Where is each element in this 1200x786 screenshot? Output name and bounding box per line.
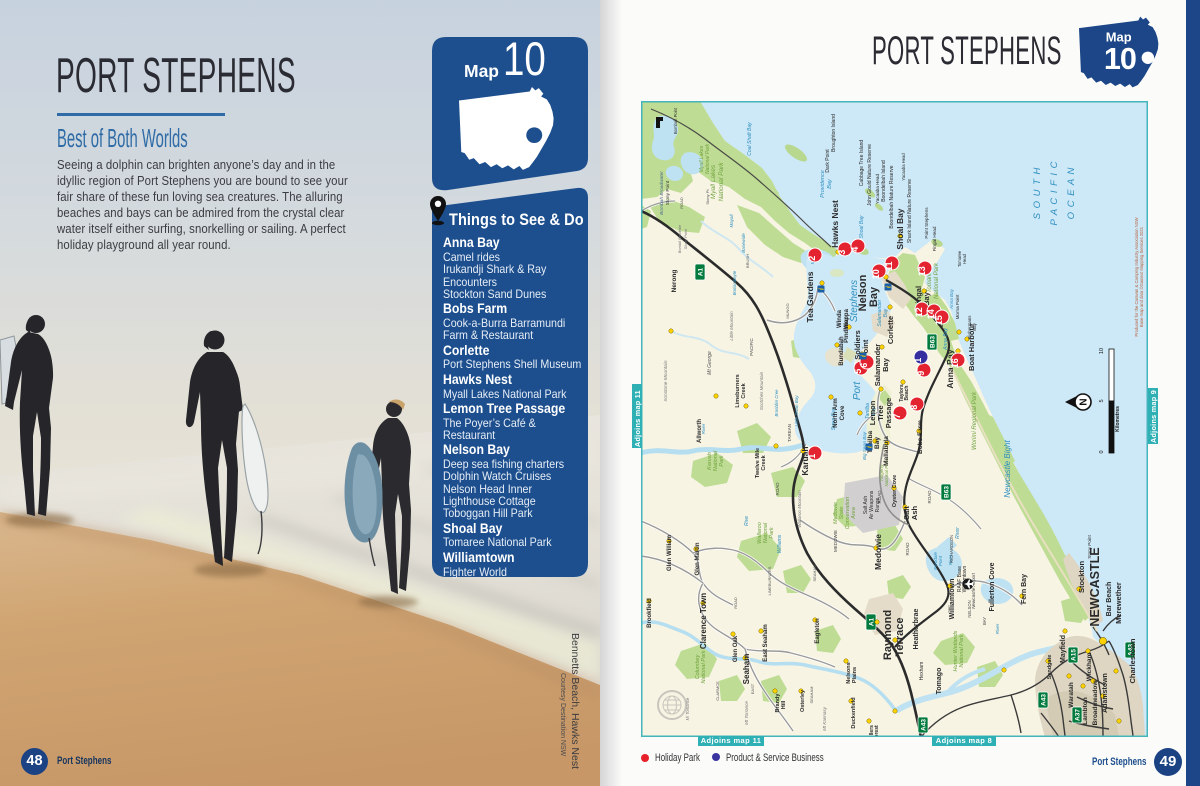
svg-text:Oyster Cove: Oyster Cove [892,475,898,507]
svg-text:Beach: Beach [904,385,910,400]
svg-text:i: i [818,288,826,290]
svg-text:B63: B63 [943,486,950,498]
svg-text:Seaham: Seaham [742,654,751,685]
svg-text:10: 10 [1104,42,1136,76]
svg-text:A15: A15 [1070,649,1077,661]
svg-text:Mallabula: Mallabula [883,436,890,466]
svg-text:Boondelbah Island: Boondelbah Island [881,160,887,202]
svg-text:Winda: Winda [837,309,843,328]
svg-text:Bay: Bay [881,357,890,372]
svg-text:4: 4 [850,247,860,252]
svg-text:Lambton: Lambton [1082,697,1089,724]
svg-text:i: i [866,446,874,448]
svg-text:A37: A37 [1074,709,1081,721]
svg-text:Basewide: Basewide [741,233,746,253]
svg-text:BRUSH: BRUSH [745,254,750,268]
svg-text:ROAD: ROAD [679,197,684,209]
svg-text:Head: Head [962,253,967,264]
svg-text:Hawks Nest: Hawks Nest [830,200,840,248]
svg-text:EAST: EAST [750,683,755,694]
svg-text:Shark Island Nature Reserve: Shark Island Nature Reserve [907,179,913,243]
svg-text:Boat Harbour: Boat Harbour [967,323,976,371]
svg-text:2: 2 [807,256,817,261]
svg-text:Wickham: Wickham [1086,653,1093,682]
svg-text:Tomago: Tomago [936,668,943,695]
svg-text:Merewether: Merewether [1114,582,1123,624]
svg-text:MEDOWIE: MEDOWIE [833,530,838,552]
svg-text:Tea Gardens: Tea Gardens [805,271,815,322]
svg-text:Bobs Farm: Bobs Farm [917,420,924,454]
svg-text:Passage: Passage [884,398,893,428]
svg-text:A43: A43 [920,719,927,731]
svg-text:Little Mountain: Little Mountain [729,311,734,341]
svg-text:Williamtown: Williamtown [949,579,956,620]
svg-text:10: 10 [1099,348,1105,354]
svg-text:9: 9 [916,371,926,376]
svg-text:Adamstown: Adamstown [1102,673,1109,713]
svg-text:Williams: Williams [777,534,783,553]
svg-text:Duckenfield: Duckenfield [851,697,857,728]
svg-text:5: 5 [1099,399,1105,402]
svg-text:River: River [995,623,1000,634]
svg-text:Bombll Brodrale: Bombll Brodrale [677,224,682,253]
svg-text:East Seaham: East Seaham [763,624,769,661]
svg-text:Brookfield: Brookfield [647,598,653,628]
svg-text:Sandgate: Sandgate [1047,655,1053,680]
svg-text:Plains: Plains [852,667,858,683]
svg-text:Rive: Rive [744,516,750,526]
svg-text:Kilometres: Kilometres [1115,406,1121,432]
svg-text:Stony Point: Stony Point [683,228,688,249]
svg-text:Boolambayte: Boolambayte [732,270,737,295]
svg-text:Fern Bay: Fern Bay [1021,574,1028,604]
svg-text:Corlette: Corlette [886,316,895,344]
svg-text:PACIFIC: PACIFIC [749,338,754,356]
svg-text:Charlestown: Charlestown [1128,638,1137,683]
svg-text:National Park: National Park [934,262,940,299]
svg-text:B63: B63 [929,336,936,348]
svg-text:Point: Point [938,555,943,566]
svg-text:Creek: Creek [741,382,747,398]
svg-text:Bay: Bay [827,178,833,189]
svg-text:Branbbin Cree: Branbbin Cree [774,389,779,417]
svg-text:Stony Point: Stony Point [665,180,671,205]
svg-text:CLARMCE: CLARMCE [715,681,720,701]
svg-text:Creek: Creek [761,454,767,470]
svg-text:Anna Bay: Anna Bay [949,288,954,310]
svg-text:Myall Lakes: Myall Lakes [710,164,717,199]
svg-text:Glen Oak: Glen Oak [733,635,739,662]
svg-text:Cove: Cove [840,405,846,420]
svg-text:Park: Park [769,527,775,539]
svg-text:Bombah Broadwater: Bombah Broadwater [659,171,665,215]
svg-text:ROAD: ROAD [927,490,932,504]
svg-text:Raymond: Raymond [882,610,894,660]
svg-text:Shoal Bay: Shoal Bay [859,215,865,238]
svg-text:Medowie: Medowie [873,534,883,570]
svg-text:Mayall: Mayall [729,214,734,228]
svg-text:Fullerton Cove: Fullerton Cove [989,562,996,611]
svg-text:TAREAN: TAREAN [787,424,792,442]
svg-text:16: 16 [950,358,960,368]
svg-text:Glen Martin: Glen Martin [695,542,701,575]
svg-text:Stony Pt: Stony Pt [705,189,710,205]
svg-text:ROAD: ROAD [775,482,780,496]
svg-text:John Gould Nature Reserve: John Gould Nature Reserve [867,144,873,206]
svg-text:Base map and data ©Gautext Ma: Base map and data ©Gautext Mapping Servi… [1139,226,1144,327]
svg-text:N: N [1079,398,1090,405]
svg-text:Stockton: Stockton [1077,561,1086,594]
svg-text:Hexham: Hexham [919,662,925,681]
svg-text:ROAD: ROAD [877,490,882,504]
svg-text:7: 7 [892,414,902,419]
svg-text:Morna Point: Morna Point [955,294,960,319]
svg-text:A1: A1 [868,617,875,626]
svg-text:Osterley: Osterley [800,689,806,712]
svg-text:Point Stephens: Point Stephens [924,207,929,239]
svg-text:Fingal Head: Fingal Head [932,226,937,251]
svg-text:MUNGO: MUNGO [785,303,790,318]
svg-text:Broughton Island: Broughton Island [831,114,837,152]
svg-text:Mayfield: Mayfield [1060,635,1067,663]
svg-text:Mt Torrance: Mt Torrance [744,701,749,725]
svg-text:RICHARDSON: RICHARDSON [949,535,954,563]
svg-text:11: 11 [884,261,894,271]
svg-text:i: i [860,355,868,357]
svg-text:NELSON: NELSON [967,600,972,617]
svg-text:National Park: National Park [718,162,725,202]
svg-text:Mt George: Mt George [707,351,713,375]
svg-text:Wallaroo Mountain: Wallaroo Mountain [797,490,802,528]
svg-text:Scotches Mountain: Scotches Mountain [759,371,764,410]
svg-text:Bundabah: Bundabah [839,336,845,366]
svg-text:0: 0 [1099,450,1105,453]
svg-text:Newcastle Bight: Newcastle Bight [1003,440,1012,498]
svg-text:Allworth: Allworth [697,419,703,443]
svg-text:SEAHAM: SEAHAM [812,565,817,582]
svg-text:S O U T H: S O U T H [1032,167,1043,220]
svg-text:Bay: Bay [874,437,881,449]
svg-text:Glen William: Glen William [667,535,673,571]
svg-text:Little Swan Bay: Little Swan Bay [794,395,799,427]
svg-text:O C E A N: O C E A N [1066,167,1077,220]
svg-text:Area: Area [851,507,857,520]
svg-text:Bar Beach: Bar Beach [1106,582,1113,617]
svg-text:Ash: Ash [910,505,919,520]
svg-text:River: River [955,527,961,539]
svg-text:Ironstone Mountain: Ironstone Mountain [663,360,669,401]
svg-text:National Park: National Park [959,634,965,667]
svg-text:LIMEBURNERS: LIMEBURNERS [767,566,772,595]
svg-text:12: 12 [914,307,924,317]
svg-text:National Park: National Park [701,650,707,683]
svg-text:A43: A43 [1040,694,1047,706]
svg-text:Bombah Point: Bombah Point [673,107,678,134]
svg-text:NEWCASTLE: NEWCASTLE [1088,547,1102,626]
svg-text:Park: Park [719,455,725,467]
svg-text:ROAD: ROAD [733,597,738,609]
svg-text:Heatherbrae: Heatherbrae [913,608,920,649]
svg-text:Coal Shaft Bay: Coal Shaft Bay [747,122,753,156]
svg-text:15: 15 [934,315,944,325]
svg-text:13: 13 [917,266,927,276]
svg-text:8: 8 [909,405,919,410]
svg-text:5: 5 [853,369,863,374]
svg-text:Mt Kannasy: Mt Kannasy [822,706,827,731]
svg-text:6: 6 [859,363,869,368]
svg-text:3: 3 [837,250,847,255]
svg-text:Anna Bay: Anna Bay [943,328,949,351]
svg-text:Eagleton: Eagleton [815,618,821,644]
svg-text:Waratah: Waratah [1068,682,1075,707]
svg-text:North Arm: North Arm [833,398,839,427]
svg-text:Yacaaba Head: Yacaaba Head [901,153,906,181]
svg-text:Nerong: Nerong [671,270,678,293]
svg-text:P A C I F I C: P A C I F I C [1049,160,1060,225]
svg-text:Bay: Bay [868,286,880,307]
svg-text:1: 1 [807,454,817,459]
svg-text:Terrace: Terrace [894,618,906,657]
svg-text:Clarence Town: Clarence Town [699,593,708,649]
svg-text:Hill: Hill [781,700,787,709]
svg-text:Dark Point: Dark Point [825,149,831,173]
svg-text:1: 1 [913,358,923,363]
svg-text:10: 10 [871,269,881,279]
svg-text:BAY: BAY [982,617,987,625]
svg-text:Forest: Forest [874,725,880,737]
svg-text:A1: A1 [697,267,704,276]
svg-text:ROAD: ROAD [905,542,910,556]
svg-text:SEAHAM: SEAHAM [809,687,814,704]
svg-text:i: i [885,286,893,288]
svg-text:Port: Port [852,381,863,401]
svg-text:Yacaaba Head: Yacaaba Head [875,174,880,204]
svg-text:Cabbage Tree Island: Cabbage Tree Island [859,140,865,187]
svg-text:Shoal Bay: Shoal Bay [895,208,905,249]
svg-text:Broadmeadow: Broadmeadow [1092,680,1099,726]
svg-text:Providence: Providence [820,170,826,198]
svg-text:National Park: National Park [705,143,711,174]
svg-text:Worimi Regional Park: Worimi Regional Park [972,391,978,450]
